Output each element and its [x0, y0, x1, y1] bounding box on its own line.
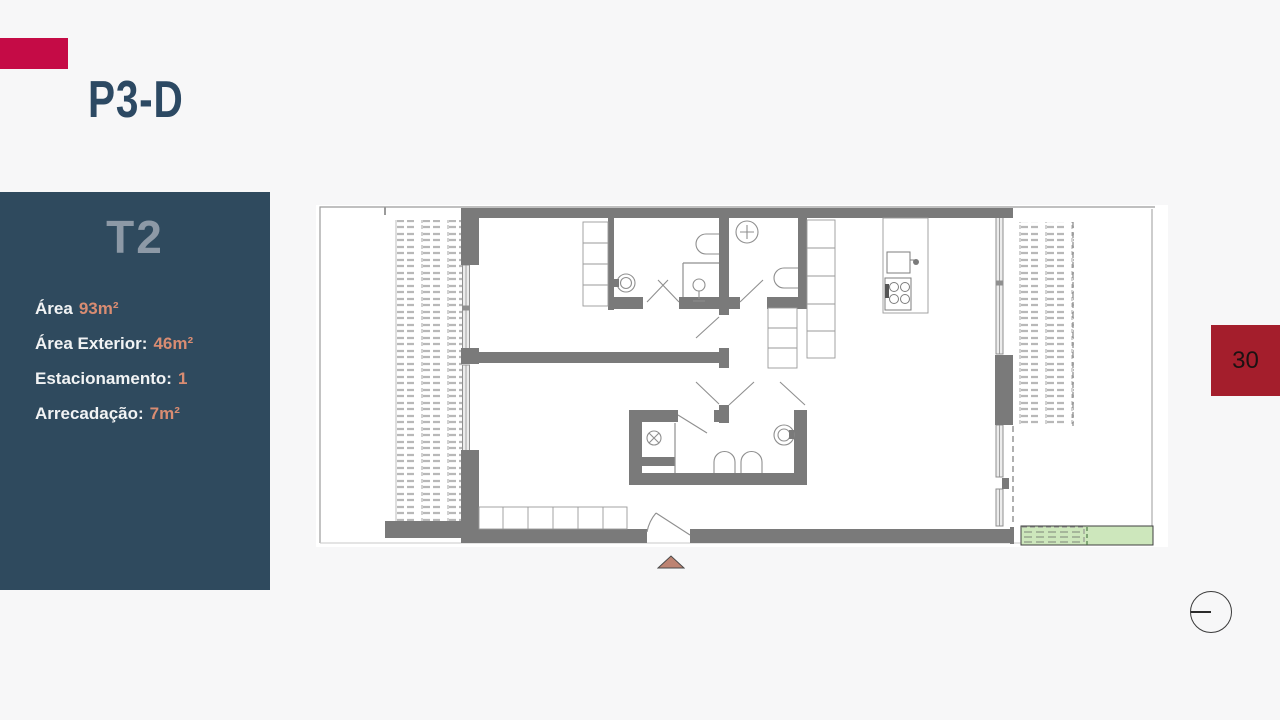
page-title: P3-D [88, 74, 184, 126]
unit-info-panel: T2 Área93m² Área Exterior:46m² Estaciona… [0, 192, 270, 590]
partitions [675, 263, 719, 473]
spec-storage-value: 7m² [150, 404, 180, 423]
accent-bar [0, 38, 68, 69]
circle-line-icon[interactable] [1190, 591, 1232, 633]
page-number: 30 [1232, 347, 1259, 375]
spec-parking: Estacionamento:1 [35, 368, 270, 391]
floor-plan [316, 205, 1168, 547]
page-number-badge: 30 [1211, 325, 1280, 396]
terrace-deck-left [396, 220, 462, 530]
spec-parking-value: 1 [178, 369, 187, 388]
spec-exterior-area: Área Exterior:46m² [35, 333, 270, 356]
floor-plan-drawing [316, 205, 1168, 547]
spec-area-label: Área [35, 299, 73, 318]
spec-area: Área93m² [35, 298, 270, 321]
spec-exterior-area-label: Área Exterior: [35, 334, 147, 353]
spec-parking-label: Estacionamento: [35, 369, 172, 388]
terrace-deck-right [1013, 222, 1074, 525]
triangle-up-icon [657, 555, 685, 569]
spec-area-value: 93m² [79, 299, 119, 318]
spec-exterior-area-value: 46m² [153, 334, 193, 353]
spec-storage: Arrecadação:7m² [35, 403, 270, 426]
slide: P3-D T2 Área93m² Área Exterior:46m² Esta… [0, 0, 1280, 720]
unit-type-label: T2 [35, 210, 235, 264]
circle-line-hand [1191, 611, 1211, 613]
garden-area [1021, 526, 1153, 545]
spec-storage-label: Arrecadação: [35, 404, 144, 423]
